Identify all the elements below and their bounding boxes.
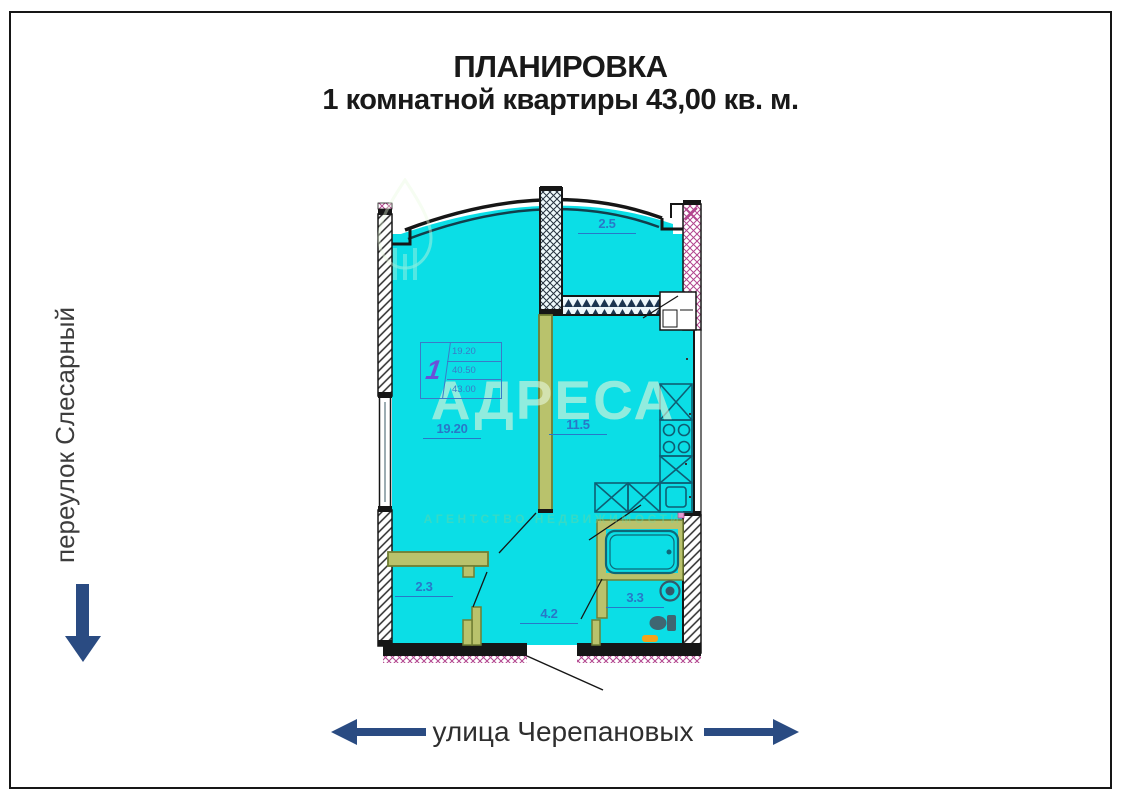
down-arrow-head-icon [65, 636, 101, 662]
right-arrow-head-icon [773, 719, 799, 745]
toilet [650, 615, 677, 631]
page-title: ПЛАНИРОВКА 1 комнатной квартиры 43,00 кв… [0, 50, 1121, 117]
room-label-hallway: 4.2 [519, 606, 579, 624]
living-room-window [378, 398, 392, 506]
left-arrow-icon [356, 728, 426, 736]
page: ПЛАНИРОВКА 1 комнатной квартиры 43,00 кв… [0, 0, 1121, 800]
left-street-label: переулок Слесарный [50, 280, 81, 590]
bathtub [606, 531, 678, 573]
title-line1: ПЛАНИРОВКА [0, 50, 1121, 84]
room-label-living-room: 19.20 [415, 421, 489, 439]
stamp-total-area: 43.00 [447, 380, 501, 398]
interior-partition-wall [538, 315, 553, 513]
title-line2: 1 комнатной квартиры 43,00 кв. м. [0, 84, 1121, 117]
stamp-living-area: 19.20 [447, 343, 501, 362]
floor-plan: АДРЕСА АГЕНТСТВО НЕДВИЖИМОСТИ 2.5 19.20 … [375, 178, 705, 698]
room-label-bathroom: 3.3 [605, 590, 665, 608]
room-label-balcony: 2.5 [577, 216, 637, 234]
stamp-area-without-balcony: 40.50 [447, 362, 501, 381]
room-label-kitchen: 11.5 [548, 417, 608, 435]
apartment-stamp: 1 19.20 40.50 43.00 [420, 342, 502, 399]
bottom-street-label: улица Черепановых [428, 716, 698, 748]
bottom-wall [383, 643, 701, 663]
stamp-rooms-count: 1 [417, 343, 451, 398]
left-arrow-head-icon [331, 719, 357, 745]
down-arrow-icon [76, 584, 89, 637]
vent-duct [660, 292, 696, 330]
right-arrow-icon [704, 728, 774, 736]
balcony-partition-wall [540, 186, 562, 315]
kitchen-top-wall [562, 296, 660, 315]
room-label-storage: 2.3 [394, 579, 454, 597]
